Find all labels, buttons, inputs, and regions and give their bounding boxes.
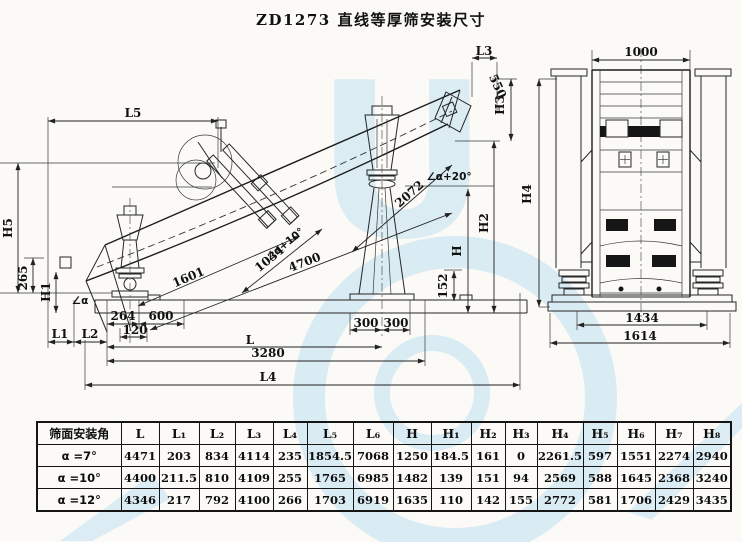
dim-label-300b: 300	[383, 316, 408, 330]
table-cell: 255	[273, 467, 307, 489]
table-cell: 3240	[693, 467, 731, 489]
table-cell: 2368	[655, 467, 693, 489]
table-cell: 1765	[307, 467, 353, 489]
table-cell: 1854.5	[307, 445, 353, 467]
table-header-H7: H₇	[655, 422, 693, 445]
table-header-L2: L₂	[199, 422, 235, 445]
exciter-assembly	[176, 120, 299, 228]
table-cell: 588	[583, 467, 617, 489]
dim-label-H4: H4	[520, 184, 534, 204]
table-cell: 2772	[537, 489, 583, 512]
dim-label-600: 600	[148, 309, 173, 323]
table-cell: 1250	[393, 445, 431, 467]
table-cell: 203	[159, 445, 199, 467]
dim-label-550: 550	[486, 72, 509, 101]
table-cell: 266	[273, 489, 307, 512]
table-cell: 4471	[121, 445, 159, 467]
table-cell: 6985	[353, 467, 393, 489]
table-cell: 142	[471, 489, 505, 512]
table-header-H6: H₆	[617, 422, 655, 445]
dim-label-H1: H1	[39, 282, 53, 302]
table-cell-angle: α =12°	[37, 489, 121, 512]
installation-dimension-table: 筛面安装角 L L₁ L₂ L₃ L₄ L₅ L₆ H H₁ H₂ H₃ H₄ …	[36, 421, 732, 512]
table-cell: 94	[505, 467, 537, 489]
drawing-title: ZD1273 直线等厚筛安装尺寸	[0, 9, 742, 30]
table-cell: 2569	[537, 467, 583, 489]
table-cell: 139	[431, 467, 471, 489]
table-header-H: H	[393, 422, 431, 445]
dim-label-300a: 300	[353, 316, 378, 330]
angle-label-alpha20: ∠α+20°	[426, 171, 471, 183]
table-cell: 810	[199, 467, 235, 489]
table-cell-angle: α =10°	[37, 467, 121, 489]
table-header-row: 筛面安装角 L L₁ L₂ L₃ L₄ L₅ L₆ H H₁ H₂ H₃ H₄ …	[37, 422, 731, 445]
table-cell: 151	[471, 467, 505, 489]
dim-label-264: 264	[110, 309, 135, 323]
table-header-L6: L₆	[353, 422, 393, 445]
table-header-L1: L₁	[159, 422, 199, 445]
table-cell: 2261.5	[537, 445, 583, 467]
dim-label-L1: L1	[52, 327, 69, 341]
table-header-H2: H₂	[471, 422, 505, 445]
dim-label-152: 152	[436, 273, 450, 298]
dim-label-H: H	[450, 245, 464, 256]
drawing-sheet: U	[0, 0, 742, 542]
table-cell: 1482	[393, 467, 431, 489]
table-cell: 2274	[655, 445, 693, 467]
dim-label-L3: L3	[476, 44, 493, 58]
dim-label-L5: L5	[125, 106, 142, 120]
table-cell: 1703	[307, 489, 353, 512]
table-cell: 0	[505, 445, 537, 467]
inspection-hole-feed	[60, 257, 71, 268]
table-cell: 1551	[617, 445, 655, 467]
table-cell: 211.5	[159, 467, 199, 489]
table-cell: 834	[199, 445, 235, 467]
table-header-H5: H₅	[583, 422, 617, 445]
dim-label-1000: 1000	[624, 45, 657, 59]
table-cell: 581	[583, 489, 617, 512]
table-cell: 6919	[353, 489, 393, 512]
table-cell: 4109	[235, 467, 273, 489]
table-row-7deg: α =7° 4471 203 834 4114 235 1854.5 7068 …	[37, 445, 731, 467]
table-cell: 4400	[121, 467, 159, 489]
dim-label-L2: L2	[82, 327, 99, 341]
dim-label-H2: H2	[477, 213, 491, 233]
dim-label-120: 120	[122, 323, 147, 337]
table-cell: 161	[471, 445, 505, 467]
table-cell: 7068	[353, 445, 393, 467]
dim-label-L: L	[246, 333, 255, 347]
table-row-12deg: α =12° 4346 217 792 4100 266 1703 6919 1…	[37, 489, 731, 512]
table-cell: 217	[159, 489, 199, 512]
dim-label-1434: 1434	[625, 311, 658, 325]
table-cell: 597	[583, 445, 617, 467]
table-cell: 4114	[235, 445, 273, 467]
table-header-H3: H₃	[505, 422, 537, 445]
table-row-10deg: α =10° 4400 211.5 810 4109 255 1765 6985…	[37, 467, 731, 489]
table-cell: 235	[273, 445, 307, 467]
dim-label-H5: H5	[1, 218, 15, 238]
table-cell: 110	[431, 489, 471, 512]
dim-label-1601: 1601	[170, 264, 206, 290]
table-cell: 1706	[617, 489, 655, 512]
table-header-H8: H₈	[693, 422, 731, 445]
table-cell: 792	[199, 489, 235, 512]
angle-label-alpha: ∠α	[72, 295, 89, 307]
table-header-angle: 筛面安装角	[37, 422, 121, 445]
table-cell: 2940	[693, 445, 731, 467]
table-cell: 2429	[655, 489, 693, 512]
table-cell: 4346	[121, 489, 159, 512]
table-header-H1: H₁	[431, 422, 471, 445]
dim-label-3280: 3280	[251, 346, 284, 360]
table-cell: 4100	[235, 489, 273, 512]
table-header-L: L	[121, 422, 159, 445]
table-cell: 184.5	[431, 445, 471, 467]
table-header-L5: L₅	[307, 422, 353, 445]
table-cell: 3435	[693, 489, 731, 512]
table-header-L4: L₄	[273, 422, 307, 445]
table-cell-angle: α =7°	[37, 445, 121, 467]
table-cell: 1635	[393, 489, 431, 512]
table-header-L3: L₃	[235, 422, 273, 445]
dim-label-L4: L4	[260, 370, 277, 384]
dim-label-265: 265	[16, 265, 30, 290]
dimension-table: 筛面安装角 L L₁ L₂ L₃ L₄ L₅ L₆ H H₁ H₂ H₃ H₄ …	[36, 421, 732, 512]
dim-label-1614: 1614	[623, 329, 656, 343]
table-header-H4: H₄	[537, 422, 583, 445]
table-cell: 155	[505, 489, 537, 512]
table-cell: 1645	[617, 467, 655, 489]
